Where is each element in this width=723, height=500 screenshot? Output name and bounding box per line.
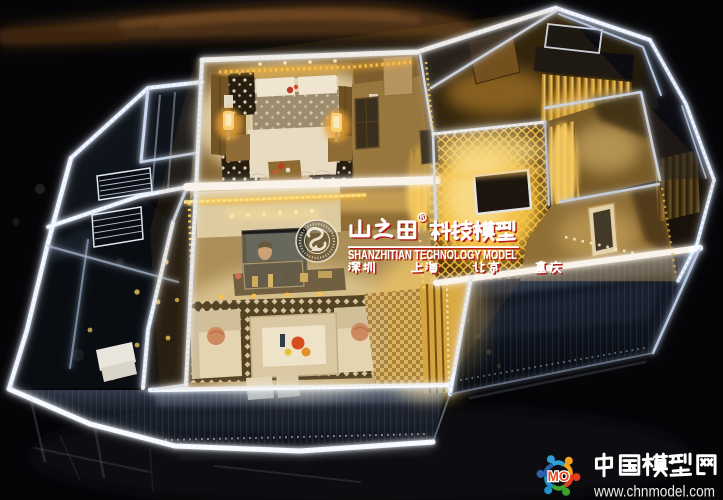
svg-text:SHANZHITIAN TECHNOLOGY MODEL: SHANZHITIAN TECHNOLOGY MODEL xyxy=(348,248,517,262)
svg-text:MO: MO xyxy=(548,469,570,484)
svg-text:www.chnmodel.com: www.chnmodel.com xyxy=(593,484,715,500)
